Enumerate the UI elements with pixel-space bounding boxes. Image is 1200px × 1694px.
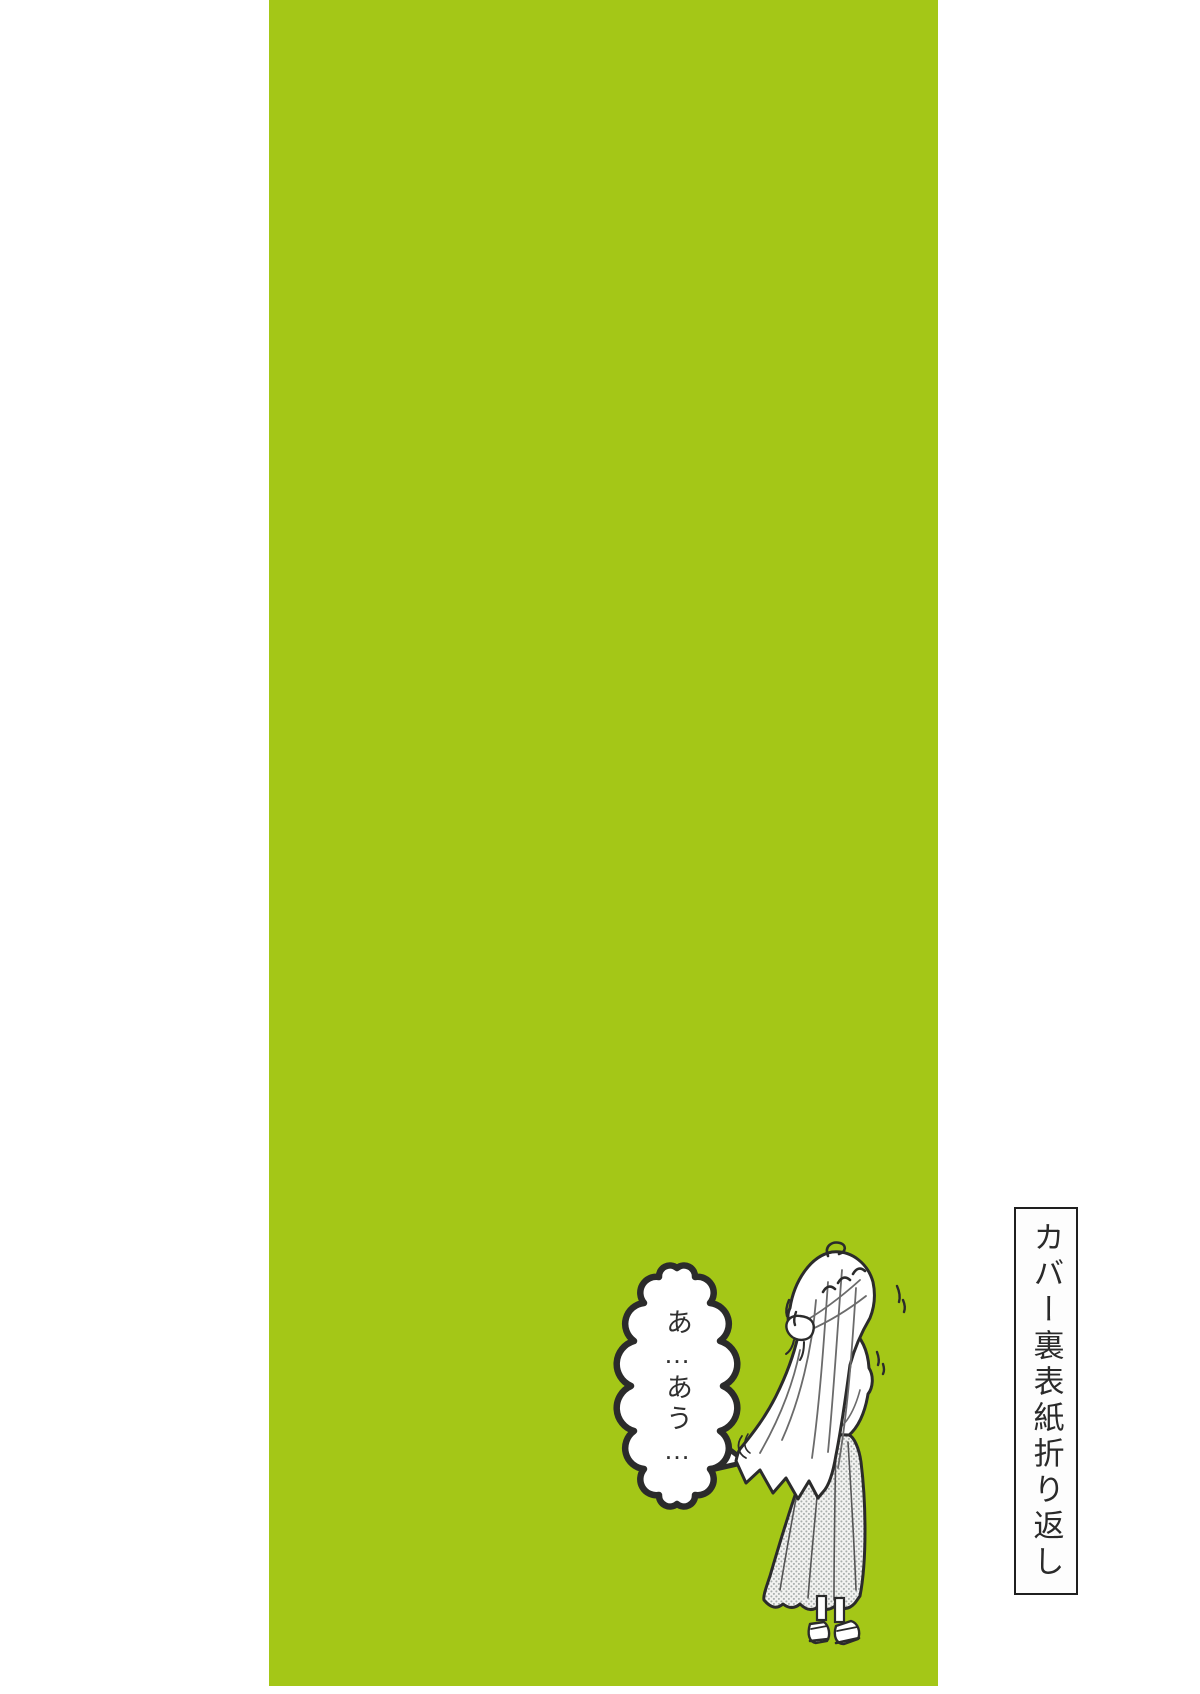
manga-page: { "colors": { "panel_green": "#a4c717", … — [0, 0, 1200, 1694]
girl-illustration — [530, 1240, 950, 1660]
speech-bubble-text: あ…あう… — [648, 1292, 706, 1484]
side-caption-box: カバー裏表紙折り返し — [1014, 1207, 1078, 1595]
side-caption-text: カバー裏表紙折り返し — [1024, 1221, 1069, 1581]
